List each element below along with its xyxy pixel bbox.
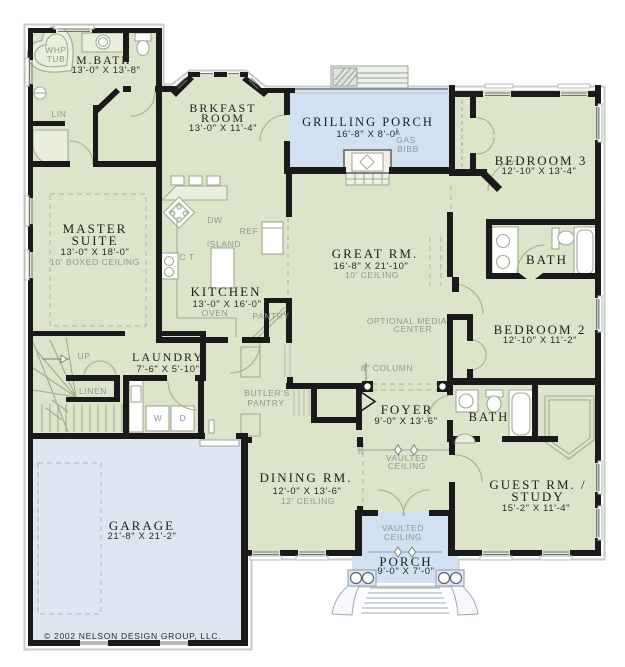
svg-text:9'-0" X 13'-6": 9'-0" X 13'-6" [374,416,437,427]
svg-text:W: W [154,413,163,423]
svg-text:13'-0" X 13'-8": 13'-0" X 13'-8" [71,65,140,76]
svg-text:LIN: LIN [51,109,66,119]
svg-text:REF: REF [240,226,259,236]
svg-text:PANTRY: PANTRY [252,311,289,321]
svg-text:DINING RM.: DINING RM. [260,470,353,485]
svg-text:LINEN: LINEN [79,386,107,396]
svg-text:15'-2" X 11'-4": 15'-2" X 11'-4" [502,503,570,514]
svg-text:10' BOXED CEILING: 10' BOXED CEILING [50,257,140,267]
svg-text:16'-8" X 8'-0": 16'-8" X 8'-0" [336,129,399,140]
svg-text:OVEN: OVEN [202,308,229,318]
svg-text:9'-0" X 7'-0": 9'-0" X 7'-0" [377,566,434,577]
svg-text:UP: UP [77,351,90,361]
svg-text:D: D [180,413,187,423]
svg-text:10' CEILING: 10' CEILING [345,270,399,280]
svg-text:GREAT RM.: GREAT RM. [332,246,418,261]
svg-text:KITCHEN: KITCHEN [190,284,261,299]
svg-text:CEILING: CEILING [388,461,426,471]
svg-text:FOYER: FOYER [381,402,434,417]
svg-text:BATH: BATH [469,410,510,424]
svg-text:13'-0" X 11'-4": 13'-0" X 11'-4" [189,123,257,134]
svg-text:PANTRY: PANTRY [247,398,284,408]
svg-text:STUDY: STUDY [511,489,564,504]
svg-text:BIBB: BIBB [397,144,419,154]
svg-text:ISLAND: ISLAND [207,239,241,249]
svg-text:BUTLER'S: BUTLER'S [244,388,290,398]
svg-text:© 2002 NELSON DESIGN GROUP, LL: © 2002 NELSON DESIGN GROUP, LLC. [44,631,221,641]
svg-text:BATH: BATH [526,252,568,267]
svg-text:8" COLUMN: 8" COLUMN [361,363,413,373]
svg-text:SUITE: SUITE [72,233,119,248]
svg-text:12' CEILING: 12' CEILING [281,496,335,506]
svg-text:7'-6" X 5'-10": 7'-6" X 5'-10" [136,364,199,375]
svg-text:TUB: TUB [47,54,66,64]
svg-text:12'-10" X 11'-2": 12'-10" X 11'-2" [503,335,577,346]
svg-text:LAUNDRY: LAUNDRY [132,350,204,364]
svg-text:12'-10" X 13'-4": 12'-10" X 13'-4" [502,166,577,177]
svg-text:21'-8" X 21'-2": 21'-8" X 21'-2" [107,531,176,542]
svg-text:C T: C T [179,252,194,262]
svg-text:CEILING: CEILING [384,532,422,542]
svg-text:CENTER: CENTER [394,324,433,334]
svg-text:GRILLING PORCH: GRILLING PORCH [302,115,434,129]
svg-text:DW: DW [207,215,222,225]
